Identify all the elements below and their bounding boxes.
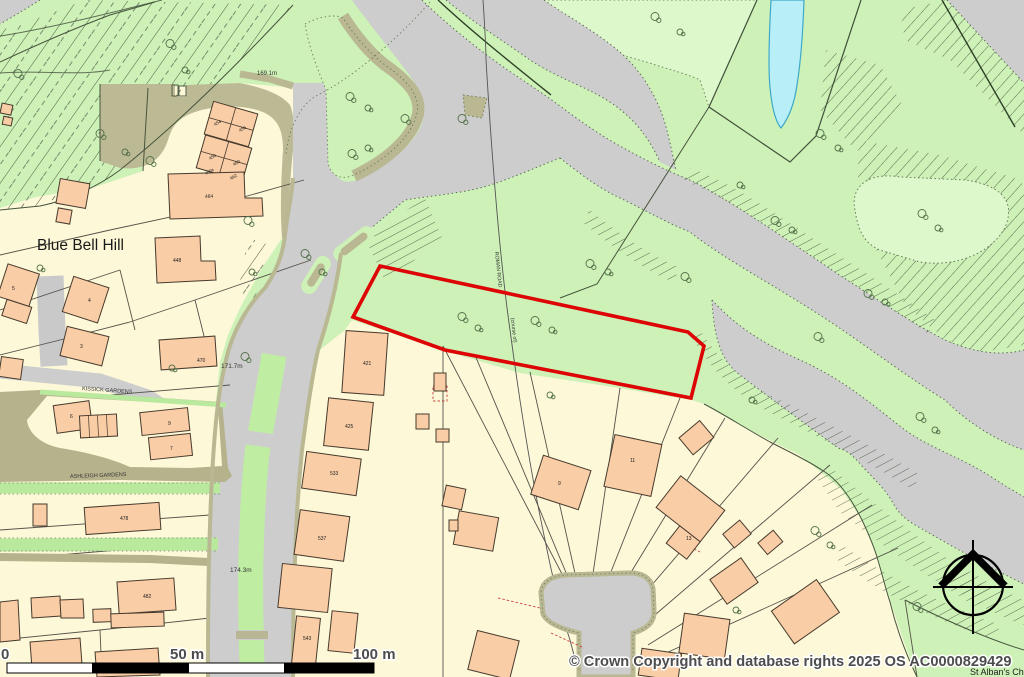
svg-text:470: 470: [197, 358, 206, 364]
svg-text:543: 543: [303, 636, 312, 642]
svg-text:St Alban's Ch: St Alban's Ch: [970, 667, 1024, 677]
svg-text:9: 9: [168, 421, 171, 427]
svg-text:3: 3: [80, 344, 83, 350]
svg-text:© Crown Copyright and database: © Crown Copyright and database rights 20…: [569, 654, 1012, 670]
svg-text:7: 7: [170, 446, 173, 452]
svg-text:174.3m: 174.3m: [230, 567, 252, 574]
svg-text:4: 4: [88, 298, 91, 304]
svg-text:169.1m: 169.1m: [257, 71, 277, 77]
svg-text:11: 11: [630, 458, 635, 464]
svg-text:537: 537: [318, 536, 327, 542]
svg-text:13: 13: [686, 536, 692, 542]
svg-text:171.7m: 171.7m: [221, 363, 243, 370]
svg-text:50 m: 50 m: [170, 646, 204, 663]
svg-text:9: 9: [558, 481, 561, 487]
svg-text:482: 482: [143, 594, 152, 600]
svg-text:533: 533: [330, 471, 339, 477]
svg-text:6: 6: [70, 414, 73, 420]
svg-text:448: 448: [173, 258, 182, 264]
svg-text:Blue Bell Hill: Blue Bell Hill: [37, 237, 124, 254]
svg-text:100 m: 100 m: [353, 646, 396, 663]
svg-text:421: 421: [363, 361, 372, 367]
svg-text:464: 464: [205, 194, 214, 200]
svg-text:478: 478: [120, 516, 129, 522]
svg-text:0: 0: [1, 646, 9, 663]
svg-text:5: 5: [12, 286, 15, 292]
svg-text:425: 425: [345, 424, 354, 430]
